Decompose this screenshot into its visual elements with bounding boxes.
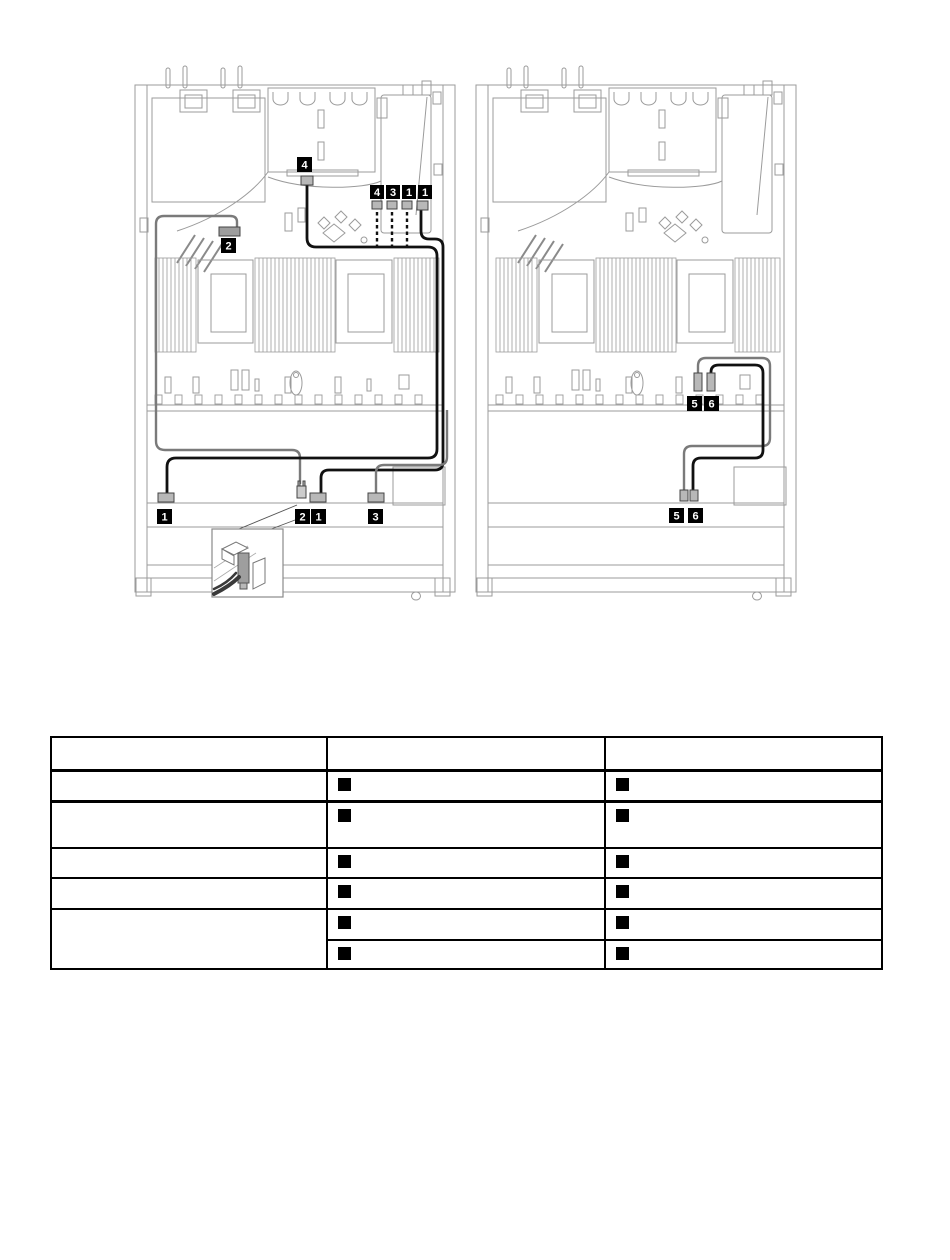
callout-badge: 1 <box>406 187 412 199</box>
table-row <box>51 848 882 878</box>
callout-cell <box>605 878 882 909</box>
callout-marker-square <box>616 885 629 898</box>
callout-marker-square <box>338 778 351 791</box>
callout-marker-square <box>338 809 351 822</box>
cable-routing-diagrams: 4 2 4 3 1 1 1 2 1 3 <box>0 0 950 660</box>
board-connector-a <box>372 201 382 209</box>
inset-connector-box-right <box>253 558 265 589</box>
cable-backplane-1-to-board <box>321 209 443 494</box>
row-label-cell <box>51 770 327 801</box>
table-header-cell-2 <box>327 737 605 770</box>
callout-badge: 5 <box>691 399 697 411</box>
cable-backplane-1-to-fan <box>167 184 437 494</box>
connector-detail-inset <box>212 529 283 597</box>
table-header-row <box>51 737 882 770</box>
backplane-connector-1 <box>158 493 174 502</box>
table-row <box>51 878 882 909</box>
callout-cell <box>605 940 882 969</box>
right-diagram-cabling: 5 6 5 6 <box>669 358 770 523</box>
callout-badge: 4 <box>374 187 381 199</box>
row-label-cell <box>51 801 327 848</box>
callout-badge: 6 <box>708 399 714 411</box>
callout-badge: 1 <box>315 512 321 524</box>
board-connector-c <box>402 201 412 209</box>
server-chassis-top-view-right <box>476 66 796 600</box>
row-label-cell <box>51 848 327 878</box>
cable-routing-figure: 4 2 4 3 1 1 1 2 1 3 <box>0 0 950 665</box>
row-label-cell <box>51 878 327 909</box>
board-connector-6 <box>707 373 715 391</box>
callout-cell <box>605 909 882 940</box>
callout-cell <box>327 940 605 969</box>
callout-cell <box>605 801 882 848</box>
callout-badge: 2 <box>299 512 305 524</box>
cable-routing-table <box>50 736 883 970</box>
fan-connector <box>301 176 313 185</box>
callout-badge: 3 <box>372 512 378 524</box>
backplane-connector-5 <box>680 490 688 501</box>
table-body <box>51 770 882 969</box>
callout-marker-square <box>616 809 629 822</box>
callout-cell <box>327 909 605 940</box>
row-label-cell <box>51 909 327 969</box>
callout-badge: 5 <box>673 511 679 523</box>
callout-cell <box>327 801 605 848</box>
table-header-cell-1 <box>51 737 327 770</box>
board-connector-d <box>417 201 428 210</box>
callout-badge: 3 <box>390 187 396 199</box>
callout-badge: 6 <box>692 511 698 523</box>
backplane-connector-2 <box>297 486 306 498</box>
table-row <box>51 801 882 848</box>
callout-cell <box>327 878 605 909</box>
manual-page: { "page": { "background": "#ffffff" }, "… <box>0 0 950 1260</box>
table-row <box>51 909 882 940</box>
callout-marker-square <box>616 947 629 960</box>
callout-cell <box>605 770 882 801</box>
callout-marker-square <box>338 916 351 929</box>
board-connector-b <box>387 201 397 209</box>
callout-marker-square <box>338 947 351 960</box>
table-header-cell-3 <box>605 737 882 770</box>
callout-badge: 4 <box>301 160 308 172</box>
callout-cell <box>327 770 605 801</box>
callout-cell <box>605 848 882 878</box>
callout-badge: 1 <box>161 512 167 524</box>
cable-front-io <box>156 216 300 484</box>
callout-marker-square <box>616 855 629 868</box>
callout-marker-square <box>338 885 351 898</box>
callout-marker-square <box>616 916 629 929</box>
callout-cell <box>327 848 605 878</box>
callout-marker-square <box>616 778 629 791</box>
backplane-connector-3 <box>368 493 384 502</box>
callout-badge: 1 <box>422 187 428 199</box>
table-row <box>51 770 882 801</box>
board-connector-5 <box>694 373 702 391</box>
front-connector-2 <box>219 227 240 236</box>
callout-marker-square <box>338 855 351 868</box>
cable-6 <box>693 365 763 490</box>
backplane-connector-1b <box>310 493 326 502</box>
callout-badge: 2 <box>225 241 231 253</box>
backplane-connector-6 <box>690 490 698 501</box>
